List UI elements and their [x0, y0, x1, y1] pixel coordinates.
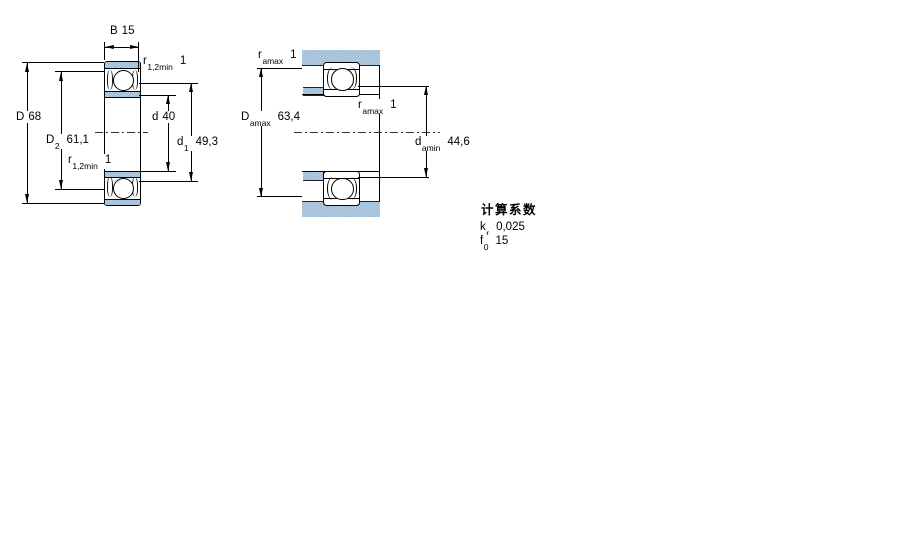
ball-icon: [331, 178, 354, 201]
dim-label-d1: d149,3: [175, 136, 220, 151]
dim-label-ramax-top: ramax1: [256, 49, 299, 64]
arrow-icon: [424, 86, 428, 95]
extension-line: [257, 196, 302, 197]
dim-label-D: D68: [14, 111, 43, 123]
dimension-line-d: [168, 95, 169, 171]
arrow-icon: [59, 180, 63, 189]
arrow-icon: [189, 83, 193, 92]
dim-label-r12-bottom: r1,2min1: [66, 154, 113, 169]
dimension-line-D2: [61, 71, 62, 189]
arrow-icon: [189, 172, 193, 181]
dimension-line-D: [27, 62, 28, 203]
factor-f0: f015: [478, 235, 510, 250]
bearing-dimension-drawing: B15 D68 D261,1 d40: [0, 0, 900, 560]
arrow-icon: [25, 63, 29, 72]
centerline: [294, 132, 440, 133]
bearing-cross-section: [104, 61, 141, 206]
calc-factors-heading: 计算系数: [481, 199, 537, 218]
extension-line: [257, 68, 302, 69]
dimension-line-Damax: [261, 68, 262, 197]
arrow-icon: [130, 45, 139, 49]
arrow-icon: [166, 162, 170, 171]
outer-ring-bottom: [105, 199, 140, 206]
outer-ring-top: [105, 62, 140, 69]
extension-line: [358, 177, 429, 178]
centerline: [95, 132, 148, 133]
arrow-icon: [166, 95, 170, 104]
arrow-icon: [424, 168, 428, 177]
shaft-shoulder-bottom: [303, 171, 325, 181]
dim-label-damin: damin44,6: [413, 136, 472, 151]
dim-label-ramax-mid: ramax1: [356, 99, 399, 114]
ball-icon: [113, 178, 134, 199]
arrow-icon: [259, 68, 263, 77]
factor-kr: kr0,025: [478, 221, 527, 236]
extension-line: [22, 203, 104, 204]
arrow-icon: [105, 45, 114, 49]
bearing-section-bottom: [323, 171, 360, 206]
inner-ring-top: [105, 91, 140, 99]
extension-line: [22, 62, 104, 63]
dim-label-r12-top: r1,2min1: [141, 55, 188, 70]
dimension-line-damin: [426, 86, 427, 177]
arrow-icon: [25, 194, 29, 203]
bearing-section-top: [323, 62, 360, 97]
ball-icon: [331, 68, 354, 91]
arrow-icon: [259, 188, 263, 197]
extension-line: [358, 86, 429, 87]
dim-label-d: d40: [150, 111, 177, 123]
dim-label-D2: D261,1: [44, 134, 91, 149]
arrow-icon: [59, 72, 63, 81]
dim-label-B: B15: [108, 25, 136, 37]
dimension-line-d1: [191, 83, 192, 181]
ball-icon: [113, 70, 134, 91]
dim-label-Damax: Damax63,4: [239, 111, 302, 126]
